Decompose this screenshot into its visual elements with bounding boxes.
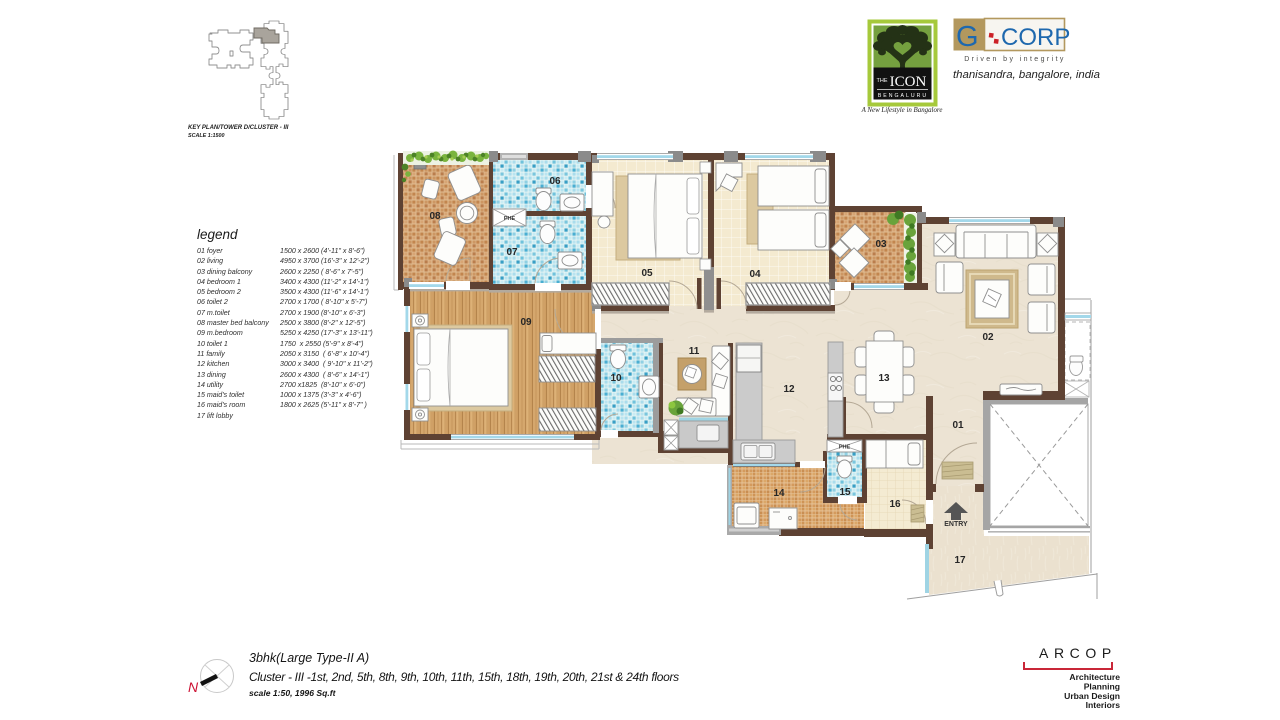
svg-text:Architecture: Architecture: [1069, 672, 1120, 682]
svg-text:03: 03: [875, 239, 887, 250]
svg-text:01: 01: [952, 420, 964, 431]
svg-text:PHE: PHE: [504, 216, 516, 222]
svg-text:Planning: Planning: [1084, 682, 1120, 692]
svg-text:04: 04: [749, 269, 761, 280]
svg-text:ENTRY: ENTRY: [944, 521, 968, 528]
svg-text:05: 05: [641, 268, 653, 279]
svg-text:02: 02: [982, 332, 994, 343]
svg-text:PHE: PHE: [839, 445, 851, 451]
svg-text:06: 06: [549, 176, 561, 187]
svg-text:15: 15: [839, 487, 851, 498]
svg-text:11: 11: [689, 346, 700, 357]
svg-text:12: 12: [783, 384, 795, 395]
svg-text:13: 13: [878, 373, 890, 384]
svg-text:09: 09: [520, 317, 532, 328]
svg-text:16: 16: [889, 499, 901, 510]
svg-text:ARCOP: ARCOP: [1039, 645, 1117, 661]
svg-text:17: 17: [954, 555, 966, 566]
svg-text:07: 07: [506, 247, 518, 258]
svg-text:Interiors: Interiors: [1086, 700, 1121, 708]
svg-text:N: N: [188, 679, 199, 695]
svg-text:14: 14: [773, 488, 785, 499]
svg-text:10: 10: [610, 373, 622, 384]
svg-text:08: 08: [429, 211, 441, 222]
